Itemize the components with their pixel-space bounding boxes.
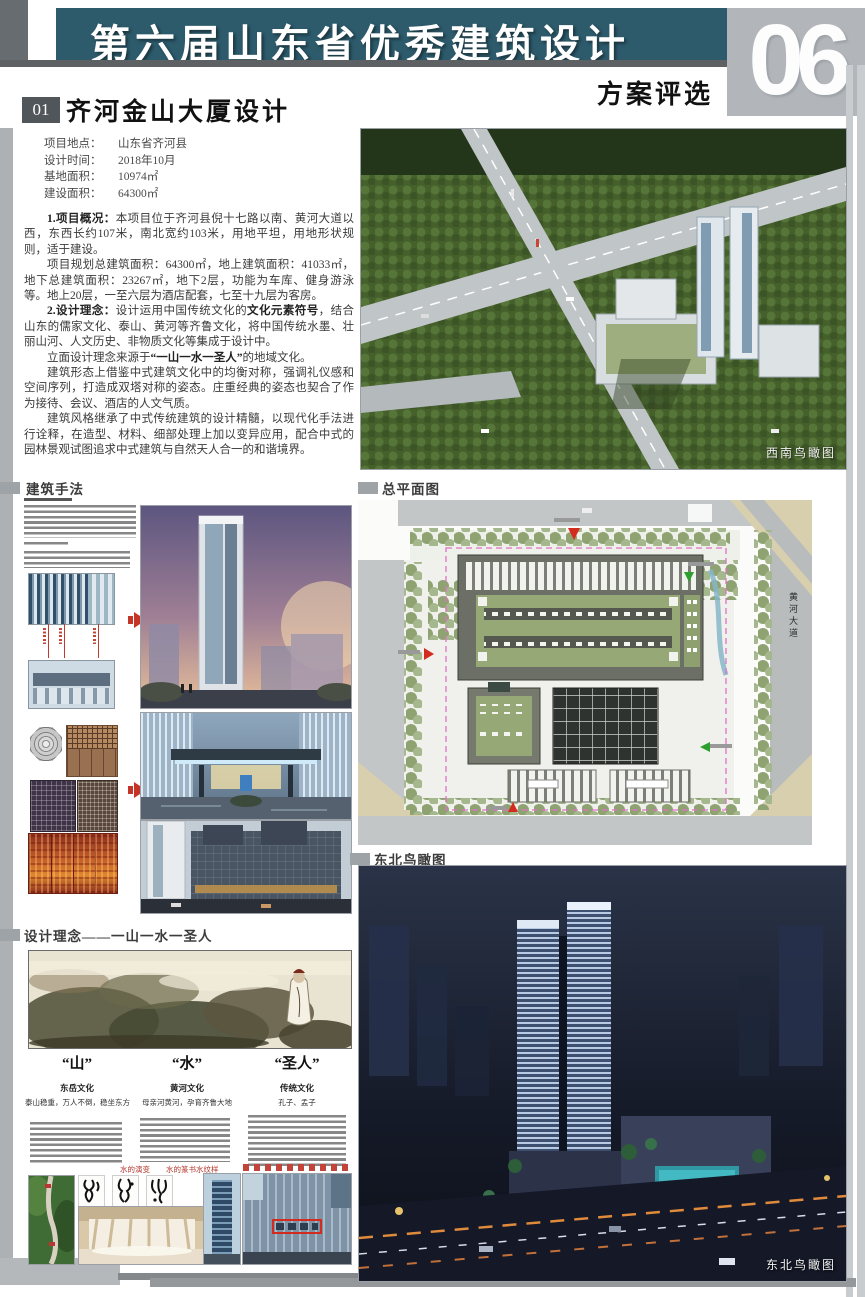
paragraph-form: 建筑形态上借鉴中式建筑文化中的均衡对称，强调礼仪感和空间序列，打造成双塔对称的姿… <box>24 366 354 412</box>
poster-page: 第六届山东省优秀建筑设计 06 方案评选 01 齐河金山大厦设计 项目地点：山东… <box>0 0 865 1297</box>
concept-column-sage: “圣人” 传统文化 孔子、孟子 <box>245 1052 349 1108</box>
ink-painting <box>28 950 352 1049</box>
column-desc: 母亲河黄河，孕育齐鲁大地 <box>135 1097 239 1108</box>
red-note: 水的演变 <box>120 1164 150 1175</box>
masterplan-section-bullet <box>358 481 378 499</box>
column-sub: 东岳文化 <box>25 1082 129 1094</box>
mountain-photo <box>28 1175 75 1265</box>
tower-photo <box>203 1173 241 1265</box>
master-plan-drawing: 黄河大道 <box>358 500 812 845</box>
left-margin-strip <box>0 128 13 1260</box>
info-row: 设计时间：2018年10月 <box>44 153 344 170</box>
annotation-text-vertical <box>93 628 96 644</box>
paragraph-areas: 项目规划总建筑面积：64300㎡，地上建筑面积：41033㎡，地下总建筑面积：2… <box>24 258 354 304</box>
info-value: 2018年10月 <box>118 155 176 167</box>
paragraph-concept: 2.设计理念：设计运用中国传统文化的文化元素符号，结合山东的儒家文化、泰山、黄河… <box>24 304 354 350</box>
seal-water-tile <box>78 1175 105 1207</box>
column-head: “山” <box>62 1056 92 1072</box>
ornate-panel-pattern <box>28 833 118 894</box>
methods-section-bullet <box>0 481 20 499</box>
info-label: 基地面积： <box>44 169 118 186</box>
column-sub: 黄河文化 <box>135 1082 239 1094</box>
seal-water-tile <box>112 1175 139 1207</box>
column-desc: 孔子、孟子 <box>245 1097 349 1108</box>
paragraph-style: 建筑风格继承了中式传统建筑的设计精髓，以现代化手法进行诠释，在造型、材料、细部处… <box>24 412 354 458</box>
info-value: 10974㎡ <box>118 171 158 183</box>
header-left-block <box>0 0 28 62</box>
column-head: “圣人” <box>274 1056 319 1072</box>
project-description: 1.项目概况：本项目位于齐河县倪十七路以南、黄河大道以西，东西长约107米，南北… <box>24 212 354 459</box>
facade-highlight-photo <box>242 1173 352 1265</box>
project-title: 齐河金山大厦设计 <box>66 92 290 128</box>
sw-aerial-caption: 西南鸟瞰图 <box>766 444 836 461</box>
seal-water-tile <box>146 1175 173 1207</box>
ne-aerial-caption: 东北鸟瞰图 <box>766 1256 836 1273</box>
masterplan-section-label: 总平面图 <box>382 478 440 498</box>
column-notes <box>248 1115 346 1167</box>
column-sub: 传统文化 <box>245 1082 349 1094</box>
methods-section-label: 建筑手法 <box>26 478 84 498</box>
right-margin-strip <box>846 65 853 1297</box>
road-name-label: 黄河大道 <box>787 592 800 640</box>
podium-render <box>140 820 352 914</box>
waterfall-photo <box>78 1206 206 1265</box>
entrance-render <box>140 712 352 820</box>
paragraph-overview: 1.项目概况：本项目位于齐河县倪十七路以南、黄河大道以西，东西长约107米，南北… <box>24 212 354 258</box>
right-margin-strip-2 <box>857 65 865 1297</box>
info-label: 项目地点： <box>44 136 118 153</box>
annotation-leader-line <box>98 624 99 658</box>
annotation-leader-line <box>48 624 49 658</box>
page-subtitle: 方案评选 <box>597 74 713 111</box>
project-number-badge: 01 <box>22 97 60 123</box>
column-notes <box>140 1118 230 1162</box>
red-note: 水的篆书 <box>166 1164 196 1175</box>
facade-elevation-strip <box>28 573 115 625</box>
concept-label: 设计理念——一山一水一圣人 <box>24 925 213 945</box>
column-notes <box>30 1122 122 1164</box>
methods-notes <box>24 498 136 568</box>
lattice-pattern-brown <box>77 780 118 832</box>
concept-column-mountain: “山” 东岳文化 泰山稳重，万人不倒，稳坐东方 <box>25 1052 129 1108</box>
seal-script-row <box>243 1164 350 1171</box>
ne-aerial-render: 东北鸟瞰图 <box>358 865 847 1282</box>
info-label: 建设面积： <box>44 186 118 203</box>
info-row: 项目地点：山东省齐河县 <box>44 136 344 153</box>
info-label: 设计时间： <box>44 153 118 170</box>
info-row: 基地面积：10974㎡ <box>44 169 344 186</box>
project-info: 项目地点：山东省齐河县 设计时间：2018年10月 基地面积：10974㎡ 建设… <box>44 136 344 202</box>
page-number: 06 <box>727 8 865 112</box>
header-underline <box>0 60 740 67</box>
info-value: 山东省齐河县 <box>118 138 187 150</box>
annotation-leader-line <box>64 624 65 658</box>
info-row: 建设面积：64300㎡ <box>44 186 344 203</box>
page-number-box: 06 <box>727 8 865 116</box>
sw-aerial-art <box>361 129 846 469</box>
octagon-medallion-pattern <box>30 727 62 761</box>
paragraph-facade: 立面设计理念来源于“一山一水一圣人”的地域文化。 <box>24 351 354 366</box>
annotation-text-vertical <box>59 628 62 644</box>
column-head: “水” <box>172 1056 202 1072</box>
column-desc: 泰山稳重，万人不倒，稳坐东方 <box>25 1097 129 1108</box>
info-value: 64300㎡ <box>118 188 158 200</box>
concept-column-water: “水” 黄河文化 母亲河黄河，孕育齐鲁大地 <box>135 1052 239 1108</box>
sw-aerial-render: 西南鸟瞰图 <box>360 128 847 470</box>
wood-door-pattern <box>66 725 118 777</box>
annotation-text-vertical <box>43 628 46 644</box>
entrance-elevation-strip <box>28 660 115 709</box>
lattice-pattern-dark <box>30 780 76 832</box>
dusk-tower-render <box>140 505 352 709</box>
concept-bullet <box>0 928 20 946</box>
